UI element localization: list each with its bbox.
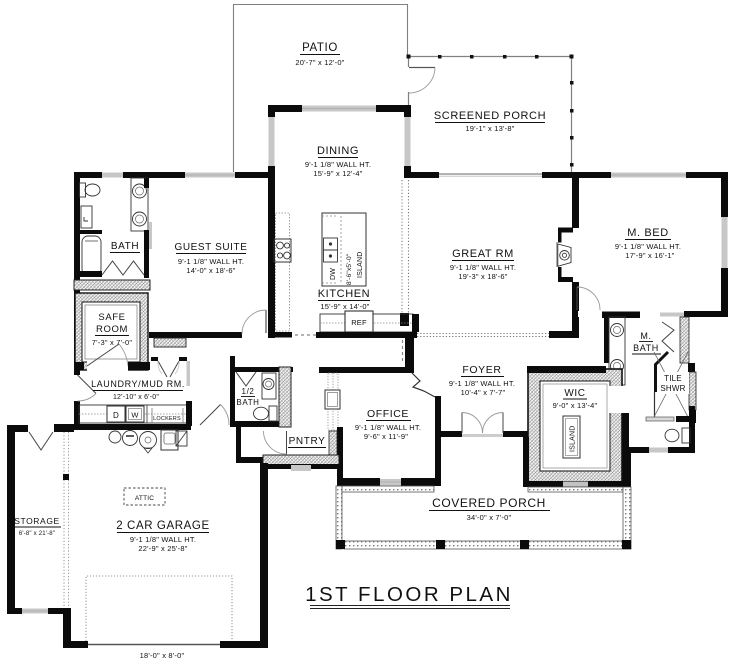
- svg-text:18'-0" x 8'-0": 18'-0" x 8'-0": [140, 651, 185, 660]
- svg-text:34'-0" x 7'-0": 34'-0" x 7'-0": [467, 513, 512, 522]
- svg-text:DINING: DINING: [317, 145, 359, 157]
- svg-text:10'-4" x 7'-7": 10'-4" x 7'-7": [461, 388, 506, 397]
- svg-text:WIC: WIC: [564, 388, 585, 399]
- svg-text:9'-1 1/8" WALL HT.: 9'-1 1/8" WALL HT.: [449, 379, 515, 388]
- svg-text:KITCHEN: KITCHEN: [318, 288, 370, 300]
- svg-text:9'-0" x 13'-4": 9'-0" x 13'-4": [553, 401, 598, 410]
- svg-text:20'-7" x 12'-0": 20'-7" x 12'-0": [295, 58, 344, 67]
- svg-text:9'-1 1/8" WALL HT.: 9'-1 1/8" WALL HT.: [130, 535, 196, 544]
- svg-text:7'-3" x 7'-0": 7'-3" x 7'-0": [92, 338, 133, 347]
- svg-text:9'-1 1/8" WALL HT.: 9'-1 1/8" WALL HT.: [615, 242, 681, 251]
- svg-text:DW: DW: [330, 268, 337, 280]
- svg-text:COVERED PORCH: COVERED PORCH: [432, 496, 546, 510]
- svg-text:D: D: [113, 411, 119, 420]
- svg-text:ATTIC: ATTIC: [135, 495, 154, 502]
- svg-text:M. BED: M. BED: [627, 227, 669, 239]
- svg-text:REF: REF: [351, 318, 367, 327]
- svg-text:BATH: BATH: [633, 343, 659, 353]
- svg-text:SCREENED PORCH: SCREENED PORCH: [434, 110, 546, 122]
- svg-text:BATH: BATH: [111, 241, 139, 252]
- svg-text:12'-10" x 6'-0": 12'-10" x 6'-0": [113, 394, 159, 401]
- svg-text:GREAT RM: GREAT RM: [452, 248, 514, 260]
- svg-text:14'-0" x 18'-6": 14'-0" x 18'-6": [186, 266, 235, 275]
- svg-text:15'-9" x 12'-4": 15'-9" x 12'-4": [313, 169, 362, 178]
- svg-text:9'-1 1/8" WALL HT.: 9'-1 1/8" WALL HT.: [178, 257, 244, 266]
- svg-text:15'-9" x 14'-0": 15'-9" x 14'-0": [320, 302, 369, 311]
- svg-text:17'-9" x 16'-1": 17'-9" x 16'-1": [625, 251, 674, 260]
- svg-text:ROOM: ROOM: [96, 324, 128, 335]
- svg-text:TILE: TILE: [664, 374, 682, 383]
- svg-text:1ST FLOOR PLAN: 1ST FLOOR PLAN: [305, 583, 513, 606]
- svg-text:BATH: BATH: [236, 398, 259, 407]
- svg-text:FOYER: FOYER: [462, 364, 501, 376]
- svg-text:19'-3" x 18'-6": 19'-3" x 18'-6": [458, 272, 507, 281]
- svg-text:9'-1 1/8" WALL HT.: 9'-1 1/8" WALL HT.: [355, 423, 421, 432]
- svg-text:M.: M.: [640, 331, 651, 341]
- svg-text:6'-8" x 21'-8": 6'-8" x 21'-8": [19, 531, 55, 537]
- svg-text:2 CAR GARAGE: 2 CAR GARAGE: [116, 520, 209, 532]
- svg-text:SHWR: SHWR: [660, 384, 685, 393]
- svg-text:19'-1" x 13'-8": 19'-1" x 13'-8": [465, 124, 514, 133]
- svg-text:OFFICE: OFFICE: [367, 408, 409, 420]
- svg-text:ISLAND: ISLAND: [357, 252, 364, 279]
- svg-text:GUEST SUITE: GUEST SUITE: [174, 242, 247, 253]
- svg-text:8'-6"x5'-0": 8'-6"x5'-0": [346, 253, 353, 285]
- svg-text:STORAGE: STORAGE: [14, 516, 60, 526]
- svg-text:PNTRY: PNTRY: [289, 436, 326, 447]
- svg-text:9'-1 1/8" WALL HT.: 9'-1 1/8" WALL HT.: [450, 263, 516, 272]
- svg-text:9'-1 1/8" WALL HT.: 9'-1 1/8" WALL HT.: [305, 160, 371, 169]
- svg-text:22'-9" x 25'-8": 22'-9" x 25'-8": [138, 544, 187, 553]
- svg-text:LAUNDRY/MUD RM.: LAUNDRY/MUD RM.: [91, 379, 185, 389]
- svg-text:W: W: [131, 411, 139, 420]
- svg-text:PATIO: PATIO: [302, 42, 338, 54]
- svg-text:ISLAND: ISLAND: [570, 426, 577, 453]
- svg-text:SAFE: SAFE: [98, 312, 125, 323]
- svg-text:LOCKERS: LOCKERS: [153, 416, 181, 422]
- svg-text:9'-6" x 11'-9": 9'-6" x 11'-9": [364, 432, 408, 441]
- svg-text:1/2: 1/2: [242, 387, 255, 396]
